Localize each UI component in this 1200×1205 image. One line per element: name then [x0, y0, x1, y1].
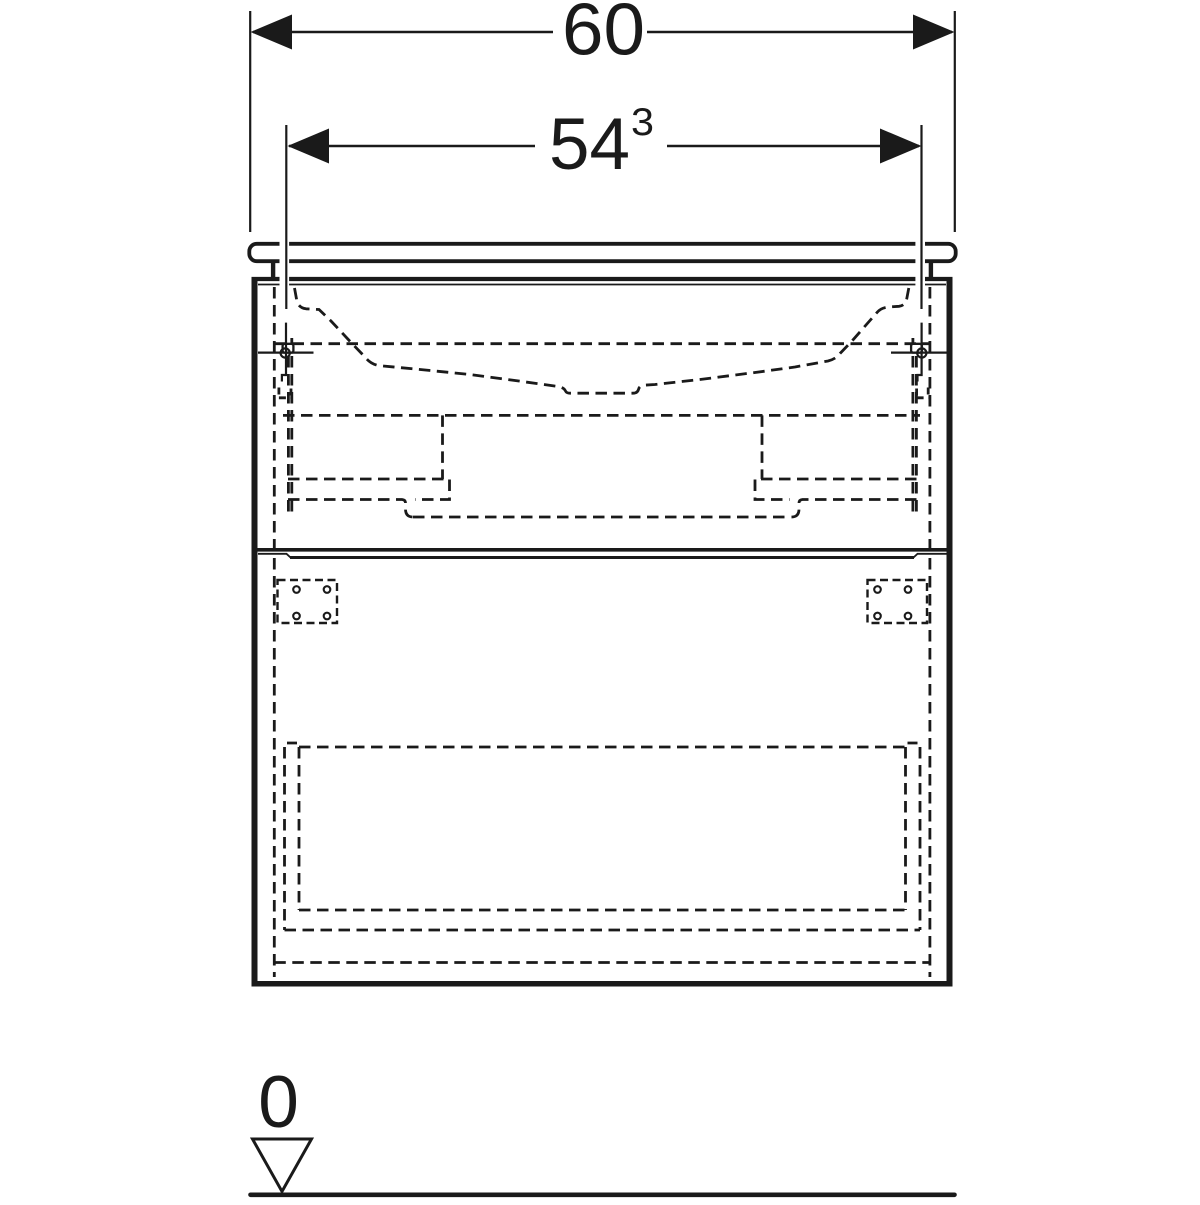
- svg-text:3: 3: [631, 101, 654, 144]
- svg-text:60: 60: [562, 0, 645, 71]
- svg-text:54: 54: [549, 104, 630, 185]
- svg-text:0: 0: [258, 1062, 299, 1143]
